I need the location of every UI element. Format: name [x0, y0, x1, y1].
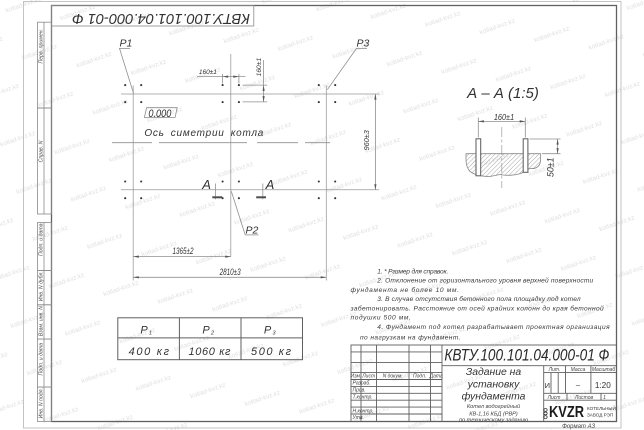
svg-text:Подп. и дата: Подп. и дата — [38, 343, 44, 376]
svg-text:Подп. и дата: Подп. и дата — [38, 223, 44, 256]
svg-text:P: P — [140, 325, 148, 337]
svg-text:Формат А3: Формат А3 — [562, 424, 595, 430]
svg-text:Листов: Листов — [574, 395, 594, 401]
svg-text:забетонировать. Расстояние от: забетонировать. Расстояние от осей крайн… — [350, 304, 605, 312]
svg-text:1. * Размер для справок.: 1. * Размер для справок. — [377, 267, 448, 275]
svg-text:Инв. N дубл.: Инв. N дубл. — [38, 271, 44, 301]
svg-text:1:20: 1:20 — [595, 381, 611, 390]
svg-text:по техническому заданию: по техническому заданию — [459, 417, 529, 423]
svg-text:Перв. примен.: Перв. примен. — [38, 29, 44, 63]
svg-text:4. Фундамент под котел разраба: 4. Фундамент под котел разрабатывает про… — [377, 323, 610, 331]
svg-text:Масса: Масса — [571, 367, 586, 373]
svg-text:50±1: 50±1 — [546, 157, 556, 177]
svg-text:Лит.: Лит. — [548, 367, 561, 373]
svg-text:КОТЕЛЬНЫЙ: КОТЕЛЬНЫЙ — [587, 404, 616, 411]
svg-text:500 кг: 500 кг — [251, 346, 292, 358]
svg-text:ЗАВОД РЭП: ЗАВОД РЭП — [587, 413, 613, 418]
svg-text:1: 1 — [603, 395, 606, 401]
svg-text:P: P — [264, 325, 272, 337]
svg-text:Задание на: Задание на — [466, 367, 522, 378]
svg-text:Пров.: Пров. — [353, 388, 366, 394]
svg-text:2: 2 — [210, 331, 214, 337]
svg-text:P: P — [202, 325, 210, 337]
svg-text:160±1: 160±1 — [256, 58, 263, 77]
svg-text:Лист: Лист — [361, 374, 375, 380]
svg-text:P3: P3 — [357, 38, 370, 50]
svg-text:И: И — [545, 381, 550, 390]
svg-text:P1: P1 — [120, 38, 133, 50]
svg-text:2810±3: 2810±3 — [219, 267, 241, 277]
svg-text:Разраб.: Разраб. — [353, 381, 371, 387]
svg-text:960±3: 960±3 — [362, 130, 371, 150]
svg-text:1060 кг: 1060 кг — [189, 346, 231, 358]
svg-text:Справ. N: Справ. N — [38, 140, 44, 162]
svg-text:Взам. инв. N: Взам. инв. N — [38, 306, 44, 336]
svg-text:1365±2: 1365±2 — [173, 246, 194, 256]
svg-text:КВТУ.100.101.04.000-01 Ф: КВТУ.100.101.04.000-01 Ф — [72, 10, 250, 27]
svg-text:160±1: 160±1 — [199, 69, 217, 76]
svg-text:Масштаб: Масштаб — [592, 367, 616, 373]
svg-text:Подп.: Подп. — [413, 374, 426, 380]
svg-text:160±1: 160±1 — [494, 113, 514, 122]
svg-text:Инв. N подл.: Инв. N подл. — [38, 388, 44, 418]
svg-text:N докум.: N докум. — [383, 374, 403, 380]
svg-text:установку: установку — [467, 380, 521, 391]
svg-text:А: А — [201, 177, 211, 192]
svg-text:подушки 500 мм.: подушки 500 мм. — [351, 313, 411, 321]
svg-text:3. В случае отсутствия бетонно: 3. В случае отсутствия бетонного пола пл… — [377, 295, 581, 303]
svg-text:фундамента не более 10 мм.: фундамента не более 10 мм. — [351, 286, 460, 294]
svg-text:А – А (1:5): А – А (1:5) — [466, 85, 539, 102]
svg-text:0.000: 0.000 — [148, 108, 172, 120]
svg-text:фундамента: фундамента — [462, 391, 526, 403]
svg-text:по нагрузкам на фундамент.: по нагрузкам на фундамент. — [360, 333, 461, 341]
svg-text:Н.контр.: Н.контр. — [353, 408, 374, 414]
svg-text:KVZR: KVZR — [549, 404, 584, 421]
svg-text:А: А — [265, 177, 275, 192]
svg-text:Изм.: Изм. — [351, 374, 362, 380]
svg-text:Котел водогрейный: Котел водогрейный — [467, 403, 520, 410]
svg-text:Дата: Дата — [429, 374, 443, 380]
svg-text:Т.контр.: Т.контр. — [353, 395, 373, 401]
svg-text:КВТУ.100.101.04.000-01 Ф: КВТУ.100.101.04.000-01 Ф — [444, 347, 609, 365]
svg-text:2. Отклонение от горизонтально: 2. Отклонение от горизонтального уровня … — [376, 276, 593, 284]
svg-text:1: 1 — [149, 331, 152, 337]
svg-text:Утв.: Утв. — [353, 415, 364, 421]
svg-text:Лист: Лист — [547, 395, 561, 401]
svg-text:Ось симетрии котла: Ось симетрии котла — [144, 128, 264, 139]
